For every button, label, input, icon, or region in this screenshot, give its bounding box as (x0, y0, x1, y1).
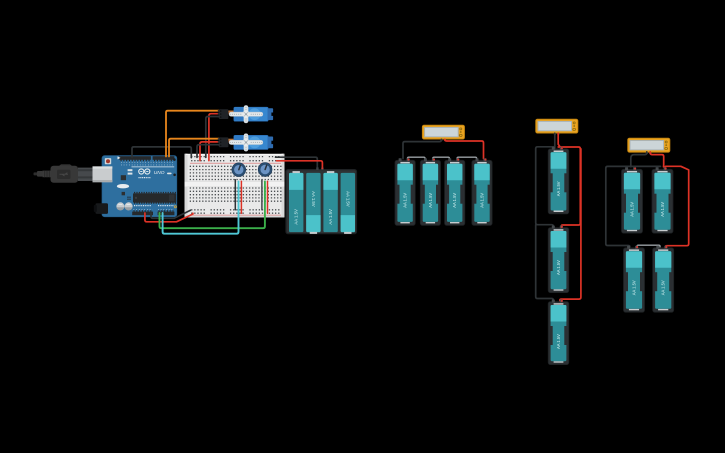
svg-text:AA 1.5V: AA 1.5V (556, 181, 561, 196)
svg-text:AA 1.5V: AA 1.5V (311, 191, 316, 207)
svg-text:AA 1.5V: AA 1.5V (428, 193, 433, 208)
svg-text:AA 1.5V: AA 1.5V (328, 209, 333, 225)
svg-text:AA 1.5V: AA 1.5V (631, 280, 636, 295)
svg-text:AA 1.5V: AA 1.5V (294, 209, 299, 225)
svg-text:AA 1.5V: AA 1.5V (345, 191, 350, 207)
svg-text:AA 1.5V: AA 1.5V (629, 202, 634, 217)
svg-text:AA 1.5V: AA 1.5V (479, 193, 484, 208)
svg-text:AA 1.5V: AA 1.5V (660, 202, 665, 217)
svg-text:AA 1.5V: AA 1.5V (403, 193, 408, 208)
svg-text:UNO: UNO (154, 170, 165, 176)
svg-text:AA 1.5V: AA 1.5V (556, 334, 561, 349)
svg-text:AA 1.5V: AA 1.5V (556, 260, 561, 275)
svg-text:AA 1.5V: AA 1.5V (452, 193, 457, 208)
svg-text:AA 1.5V: AA 1.5V (661, 280, 666, 295)
